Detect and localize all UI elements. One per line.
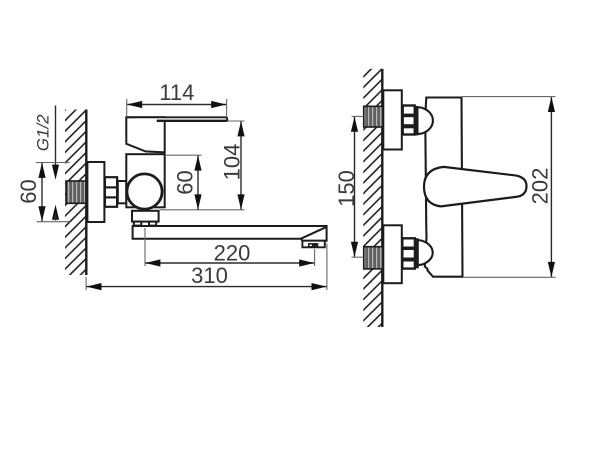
svg-text:202: 202 — [528, 168, 553, 205]
svg-text:60: 60 — [173, 170, 198, 194]
svg-text:220: 220 — [214, 241, 251, 266]
svg-text:G1/2: G1/2 — [34, 114, 53, 151]
svg-text:310: 310 — [191, 263, 228, 288]
svg-text:104: 104 — [219, 144, 244, 181]
svg-text:114: 114 — [159, 80, 194, 105]
svg-text:150: 150 — [334, 170, 359, 207]
svg-text:60: 60 — [16, 179, 41, 203]
